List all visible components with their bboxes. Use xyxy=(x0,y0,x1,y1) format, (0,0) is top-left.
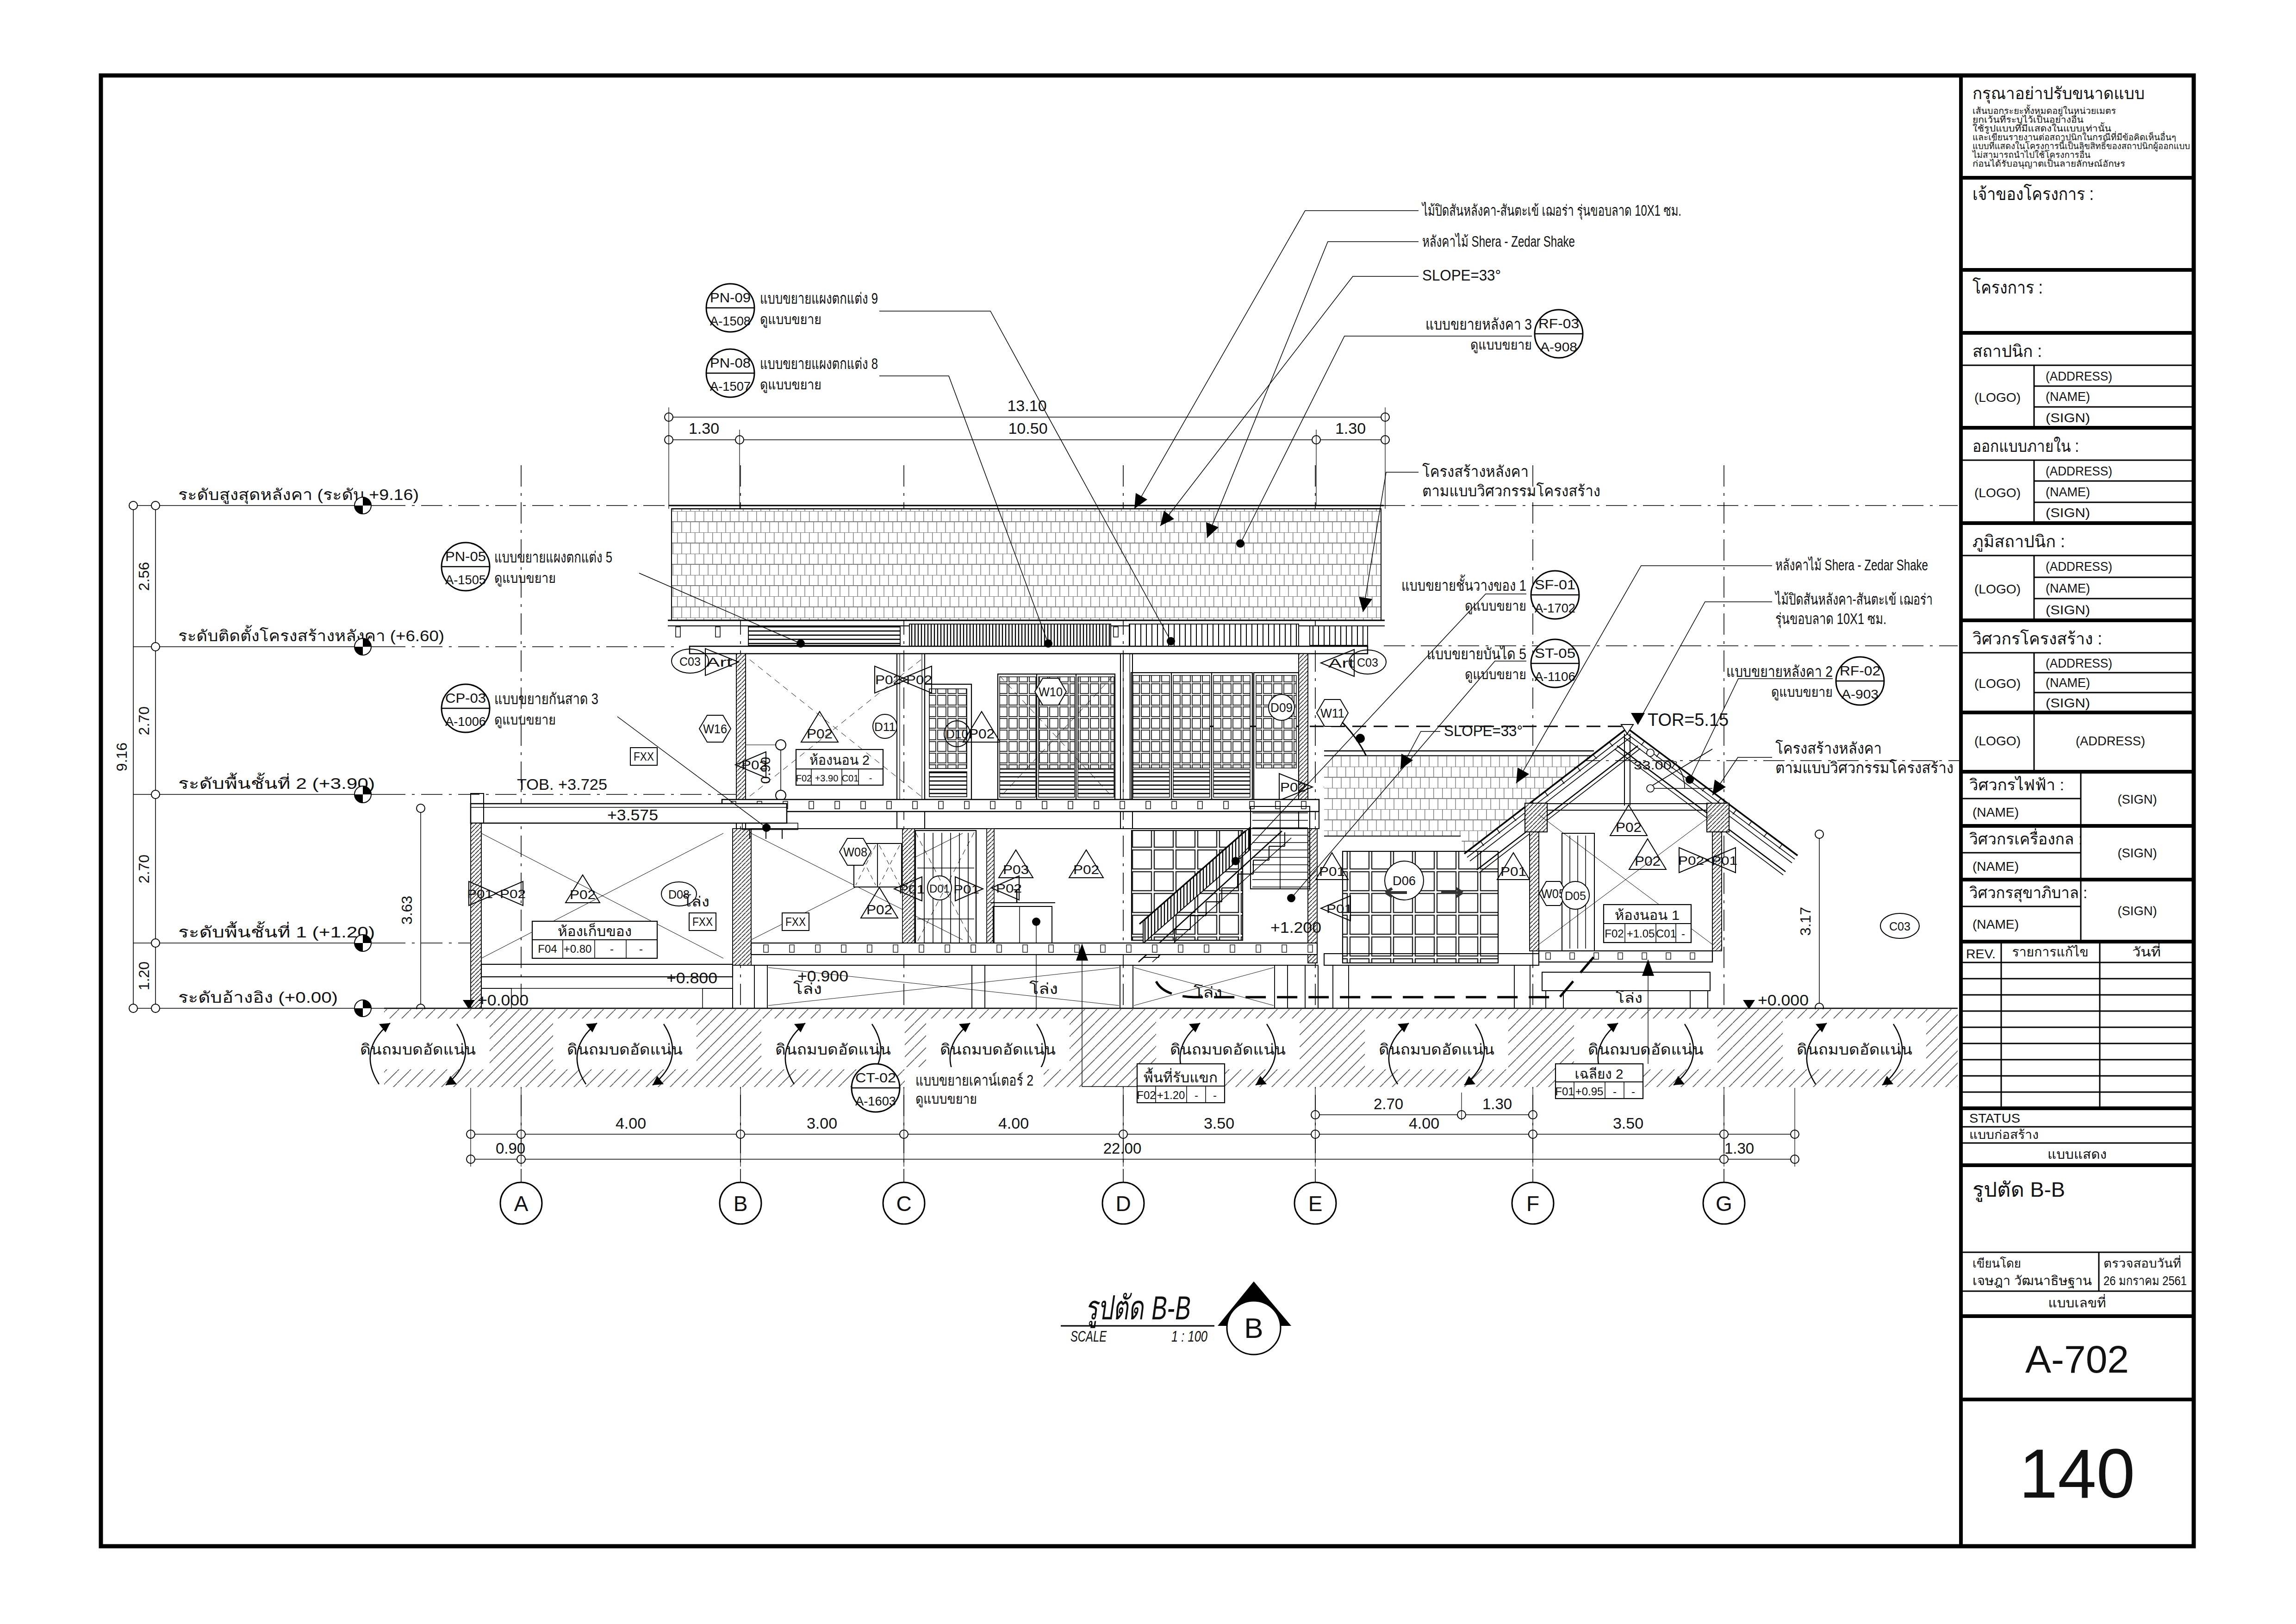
svg-text:A-1507: A-1507 xyxy=(710,379,751,394)
svg-text:(SIGN): (SIGN) xyxy=(2118,904,2157,918)
svg-text:C01: C01 xyxy=(842,773,859,783)
svg-text:PN-09: PN-09 xyxy=(710,290,751,305)
svg-text:ดูแบบขยาย: ดูแบบขยาย xyxy=(760,312,821,328)
svg-text:(NAME): (NAME) xyxy=(2046,485,2090,499)
svg-text:SLOPE=33°: SLOPE=33° xyxy=(1422,266,1501,284)
svg-text:P02: P02 xyxy=(1635,853,1661,868)
svg-text:D11: D11 xyxy=(874,720,896,734)
svg-text:F02: F02 xyxy=(796,773,812,783)
svg-text:(ADDRESS): (ADDRESS) xyxy=(2046,656,2112,670)
svg-text:C03: C03 xyxy=(1889,919,1910,933)
svg-text:RF-02: RF-02 xyxy=(1840,663,1880,678)
svg-text:-: - xyxy=(639,943,643,955)
svg-text:2.56: 2.56 xyxy=(136,562,152,591)
svg-text:(LOGO): (LOGO) xyxy=(1974,734,2021,748)
svg-text:D: D xyxy=(1115,1192,1131,1216)
svg-text:(NAME): (NAME) xyxy=(2046,581,2090,595)
svg-text:9.16: 9.16 xyxy=(113,743,130,771)
svg-text:2.70: 2.70 xyxy=(136,855,152,883)
svg-text:3.50: 3.50 xyxy=(1613,1114,1643,1132)
svg-text:ระดับอ้างอิง (+0.00): ระดับอ้างอิง (+0.00) xyxy=(178,989,338,1006)
svg-text:RF-03: RF-03 xyxy=(1538,316,1579,331)
svg-text:ดูแบบขยาย: ดูแบบขยาย xyxy=(915,1091,977,1107)
svg-text:ออกแบบภายใน :: ออกแบบภายใน : xyxy=(1972,437,2079,456)
svg-text:3.17: 3.17 xyxy=(1797,907,1814,936)
svg-text:4.00: 4.00 xyxy=(616,1114,646,1132)
svg-text:33.00°: 33.00° xyxy=(1634,758,1678,772)
svg-text:ตามแบบวิศวกรรมโครงสร้าง: ตามแบบวิศวกรรมโครงสร้าง xyxy=(1422,482,1600,500)
svg-text:(LOGO): (LOGO) xyxy=(1974,486,2021,500)
svg-text:3.63: 3.63 xyxy=(398,896,415,924)
svg-text:-: - xyxy=(610,943,614,955)
svg-text:(ADDRESS): (ADDRESS) xyxy=(2046,464,2112,478)
svg-text:ตรวจสอบวันที่: ตรวจสอบวันที่ xyxy=(2103,1255,2181,1270)
svg-text:วิศวกรสุขาภิบาล :: วิศวกรสุขาภิบาล : xyxy=(1969,884,2087,902)
svg-text:F01: F01 xyxy=(1555,1085,1574,1098)
svg-text:-: - xyxy=(1681,927,1685,940)
svg-text:+0.900: +0.900 xyxy=(797,968,848,985)
svg-text:+0.800: +0.800 xyxy=(666,969,717,987)
svg-text:เจ้าของโครงการ :: เจ้าของโครงการ : xyxy=(1972,184,2094,204)
svg-text:โครงสร้างหลังคา: โครงสร้างหลังคา xyxy=(1775,740,1882,757)
svg-text:A-908: A-908 xyxy=(1540,340,1577,354)
svg-text:-: - xyxy=(1195,1089,1198,1101)
svg-text:แบบขยายแผงตกแต่ง 5: แบบขยายแผงตกแต่ง 5 xyxy=(494,549,612,566)
svg-text:แบบขยายบันได 5: แบบขยายบันได 5 xyxy=(1427,645,1526,662)
svg-text:ดินถมบดอัดแน่น: ดินถมบดอัดแน่น xyxy=(1379,1041,1494,1058)
svg-text:4.00: 4.00 xyxy=(998,1114,1029,1132)
svg-text:C03: C03 xyxy=(679,655,701,668)
svg-text:ดินถมบดอัดแน่น: ดินถมบดอัดแน่น xyxy=(1588,1041,1704,1058)
svg-text:ดินถมบดอัดแน่น: ดินถมบดอัดแน่น xyxy=(1797,1041,1912,1058)
svg-text:ดูแบบขยาย: ดูแบบขยาย xyxy=(494,570,556,587)
svg-text:W10: W10 xyxy=(1039,685,1063,699)
svg-text:ห้องนอน 2: ห้องนอน 2 xyxy=(809,752,870,768)
svg-text:เขียนโดย: เขียนโดย xyxy=(1972,1256,2021,1270)
svg-text:SCALE: SCALE xyxy=(1070,1327,1107,1345)
svg-text:ไม่สามารถนำไปใช้โครงการอื่น: ไม่สามารถนำไปใช้โครงการอื่น xyxy=(1972,149,2091,160)
svg-text:กรุณาอย่าปรับขนาดแบบ: กรุณาอย่าปรับขนาดแบบ xyxy=(1972,84,2145,104)
svg-text:ดูแบบขยาย: ดูแบบขยาย xyxy=(1465,667,1526,683)
svg-text:CT-02: CT-02 xyxy=(855,1070,896,1085)
svg-text:วิศวกรโครงสร้าง :: วิศวกรโครงสร้าง : xyxy=(1972,629,2102,648)
svg-text:ระดับพื้นชั้นที่ 1 (+1.20): ระดับพื้นชั้นที่ 1 (+1.20) xyxy=(178,921,375,941)
svg-text:D06: D06 xyxy=(1393,874,1416,888)
svg-text:รุ่นขอบลาด 10X1 ซม.: รุ่นขอบลาด 10X1 ซม. xyxy=(1775,610,1886,628)
svg-text:CP-03: CP-03 xyxy=(445,690,486,706)
svg-text:(LOGO): (LOGO) xyxy=(1974,390,2021,405)
svg-text:A-1603: A-1603 xyxy=(855,1094,896,1108)
svg-text:ระดับสูงสุดหลังคา (ระดับ +9.16: ระดับสูงสุดหลังคา (ระดับ +9.16) xyxy=(178,486,419,504)
svg-text:(SIGN): (SIGN) xyxy=(2046,603,2090,617)
svg-text:(NAME): (NAME) xyxy=(2046,675,2090,690)
svg-text:D05: D05 xyxy=(1565,889,1586,903)
svg-text:+0.95: +0.95 xyxy=(1575,1085,1604,1098)
svg-text:SLOPE=33°: SLOPE=33° xyxy=(1444,722,1523,739)
svg-text:ดูแบบขยาย: ดูแบบขยาย xyxy=(494,712,556,728)
svg-text:(SIGN): (SIGN) xyxy=(2046,506,2090,520)
svg-text:P02: P02 xyxy=(875,673,901,687)
svg-text:ดูแบบขยาย: ดูแบบขยาย xyxy=(1470,337,1532,353)
svg-text:P01: P01 xyxy=(1711,854,1737,868)
svg-text:+0.80: +0.80 xyxy=(564,943,592,955)
svg-text:C03: C03 xyxy=(1357,656,1378,669)
svg-text:-: - xyxy=(869,773,872,783)
svg-text:P02: P02 xyxy=(1678,854,1704,868)
svg-text:B: B xyxy=(734,1192,748,1216)
svg-text:G: G xyxy=(1716,1192,1732,1216)
svg-text:P01: P01 xyxy=(467,887,493,901)
svg-text:1.30: 1.30 xyxy=(1335,419,1366,437)
svg-text:แบบขยายหลังคา 3: แบบขยายหลังคา 3 xyxy=(1425,316,1532,333)
svg-text:แบบขยายแผงตกแต่ง 8: แบบขยายแผงตกแต่ง 8 xyxy=(760,355,878,372)
svg-text:P02: P02 xyxy=(969,726,995,741)
svg-text:F: F xyxy=(1526,1192,1539,1216)
svg-text:+3.575: +3.575 xyxy=(607,806,658,824)
svg-text:2.70: 2.70 xyxy=(1374,1095,1403,1112)
svg-text:P02: P02 xyxy=(741,758,767,772)
svg-text:W11: W11 xyxy=(1320,706,1344,720)
svg-text:แบบเลขที่: แบบเลขที่ xyxy=(2048,1294,2106,1310)
svg-text:D09: D09 xyxy=(1270,700,1293,715)
svg-text:(SIGN): (SIGN) xyxy=(2118,792,2157,806)
svg-text:P02: P02 xyxy=(1073,862,1099,877)
svg-text:P02: P02 xyxy=(996,881,1022,895)
svg-text:ห้องเก็บของ: ห้องเก็บของ xyxy=(558,923,632,939)
svg-text:A-1505: A-1505 xyxy=(445,573,486,587)
svg-text:แบบแสดง: แบบแสดง xyxy=(2047,1147,2107,1162)
svg-text:4.00: 4.00 xyxy=(1409,1114,1439,1132)
svg-text:ก่อนได้รับอนุญาตเป็นลายลักษณ์อ: ก่อนได้รับอนุญาตเป็นลายลักษณ์อักษร xyxy=(1972,158,2125,169)
svg-text:A: A xyxy=(514,1192,529,1216)
svg-text:(SIGN): (SIGN) xyxy=(2046,696,2090,710)
svg-text:A-1106: A-1106 xyxy=(1535,669,1575,684)
svg-text:ระดับติดตั้งโครงสร้างหลังคา (+: ระดับติดตั้งโครงสร้างหลังคา (+6.60) xyxy=(178,625,444,644)
svg-text:1.30: 1.30 xyxy=(1482,1095,1512,1112)
svg-text:(LOGO): (LOGO) xyxy=(1974,676,2021,691)
svg-text:1.30: 1.30 xyxy=(689,419,719,437)
svg-text:P02: P02 xyxy=(570,887,596,902)
svg-text:(NAME): (NAME) xyxy=(1972,917,2019,931)
svg-text:C01: C01 xyxy=(1656,927,1676,940)
svg-text:แบบก่อสร้าง: แบบก่อสร้าง xyxy=(1969,1128,2039,1142)
svg-text:+0.000: +0.000 xyxy=(1758,992,1809,1009)
svg-text:REV.: REV. xyxy=(1966,947,1996,961)
svg-text:แบบขยายแผงตกแต่ง 9: แบบขยายแผงตกแต่ง 9 xyxy=(760,290,878,307)
svg-text:PN-05: PN-05 xyxy=(445,549,486,564)
svg-text:P01: P01 xyxy=(1326,902,1352,916)
svg-text:โครงการ :: โครงการ : xyxy=(1972,277,2043,297)
svg-text:P03: P03 xyxy=(1003,862,1029,877)
svg-text:รูปตัด B-B: รูปตัด B-B xyxy=(1084,1289,1194,1328)
svg-text:-: - xyxy=(1613,1085,1617,1098)
svg-text:(SIGN): (SIGN) xyxy=(2046,411,2090,425)
svg-text:A-702: A-702 xyxy=(2025,1337,2129,1381)
svg-text:(ADDRESS): (ADDRESS) xyxy=(2046,559,2112,574)
svg-text:ดินถมบดอัดแน่น: ดินถมบดอัดแน่น xyxy=(1170,1041,1286,1058)
svg-text:STATUS: STATUS xyxy=(1969,1111,2020,1125)
svg-text:-: - xyxy=(1631,1085,1635,1098)
svg-text:+1.05: +1.05 xyxy=(1627,927,1655,940)
svg-text:หลังคาไม้ Shera - Zedar Shake: หลังคาไม้ Shera - Zedar Shake xyxy=(1422,233,1575,250)
svg-text:(NAME): (NAME) xyxy=(1972,805,2019,819)
svg-text:+1.20: +1.20 xyxy=(1157,1089,1185,1101)
svg-text:โล่ง: โล่ง xyxy=(1194,984,1222,1001)
svg-text:P01: P01 xyxy=(899,882,925,896)
svg-text:Art: Art xyxy=(706,655,732,669)
svg-text:C: C xyxy=(896,1192,911,1216)
svg-text:P02: P02 xyxy=(866,902,892,917)
svg-text:P02: P02 xyxy=(1280,780,1306,794)
svg-text:P01: P01 xyxy=(1319,864,1345,879)
svg-text:P01: P01 xyxy=(1500,864,1526,879)
svg-text:เจษฎา วัฒนาธิษฐาน: เจษฎา วัฒนาธิษฐาน xyxy=(1972,1274,2092,1288)
svg-text:+1.200: +1.200 xyxy=(1270,918,1321,936)
svg-text:1.20: 1.20 xyxy=(136,962,152,990)
svg-text:A-903: A-903 xyxy=(1842,687,1879,701)
svg-text:10.50: 10.50 xyxy=(1008,419,1047,437)
svg-text:140: 140 xyxy=(2019,1435,2135,1512)
svg-text:วิศวกรเครื่องกล :: วิศวกรเครื่องกล : xyxy=(1969,828,2083,848)
svg-text:P02: P02 xyxy=(1616,819,1642,835)
svg-text:F04: F04 xyxy=(538,943,557,955)
svg-text:13.10: 13.10 xyxy=(1007,397,1046,414)
svg-text:-: - xyxy=(1213,1089,1217,1101)
svg-text:(LOGO): (LOGO) xyxy=(1974,582,2021,596)
svg-text:ตามแบบวิศวกรรมโครงสร้าง: ตามแบบวิศวกรรมโครงสร้าง xyxy=(1775,759,1954,776)
svg-text:P02: P02 xyxy=(906,673,932,687)
svg-text:พื้นที่รับแขก: พื้นที่รับแขก xyxy=(1144,1068,1218,1085)
svg-text:ดูแบบขยาย: ดูแบบขยาย xyxy=(760,377,821,393)
svg-text:P02: P02 xyxy=(500,887,526,901)
svg-text:ไม้ปิดสันหลังคา-สันตะเข้ เฌอร่: ไม้ปิดสันหลังคา-สันตะเข้ เฌอร่า รุ่นขอบล… xyxy=(1421,202,1681,220)
svg-text:แบบขยายกันสาด 3: แบบขยายกันสาด 3 xyxy=(494,690,598,707)
svg-text:โครงสร้างหลังคา: โครงสร้างหลังคา xyxy=(1422,463,1529,480)
svg-text:3.50: 3.50 xyxy=(1204,1114,1234,1132)
svg-text:โล่ง: โล่ง xyxy=(683,893,709,909)
svg-text:26 มกราคม 2561: 26 มกราคม 2561 xyxy=(2103,1274,2187,1288)
svg-text:(NAME): (NAME) xyxy=(1972,859,2019,874)
svg-text:TOR=5.15: TOR=5.15 xyxy=(1648,710,1729,730)
svg-text:2.70: 2.70 xyxy=(136,706,152,735)
svg-text:F02: F02 xyxy=(1137,1089,1156,1101)
svg-text:FXX: FXX xyxy=(785,915,806,929)
svg-text:B: B xyxy=(1244,1312,1263,1344)
svg-text:W08: W08 xyxy=(843,845,867,859)
svg-text:SF-01: SF-01 xyxy=(1535,577,1575,592)
svg-text:PN-08: PN-08 xyxy=(710,355,751,370)
svg-text:เฉลียง 2: เฉลียง 2 xyxy=(1575,1066,1624,1081)
svg-text:ดูแบบขยาย: ดูแบบขยาย xyxy=(1771,684,1833,700)
svg-text:แบบขยายชั้นวางของ 1: แบบขยายชั้นวางของ 1 xyxy=(1401,575,1526,594)
svg-text:วันที่: วันที่ xyxy=(2132,943,2161,959)
svg-text:ดินถมบดอัดแน่น: ดินถมบดอัดแน่น xyxy=(360,1041,476,1058)
svg-text:รูปตัด B-B: รูปตัด B-B xyxy=(1972,1178,2065,1202)
svg-text:1.30: 1.30 xyxy=(1724,1140,1754,1157)
svg-text:วิศวกรไฟฟ้า :: วิศวกรไฟฟ้า : xyxy=(1969,776,2064,793)
svg-text:โล่ง: โล่ง xyxy=(1029,981,1058,997)
svg-text:ห้องนอน 1: ห้องนอน 1 xyxy=(1615,907,1680,923)
svg-text:+3.90: +3.90 xyxy=(815,773,839,783)
svg-text:และเขียนรายงานต่อสถาปนิกในกรณี: และเขียนรายงานต่อสถาปนิกในกรณีที่มีข้อคิ… xyxy=(1972,131,2176,142)
svg-text:P01: P01 xyxy=(953,882,979,896)
svg-text:FXX: FXX xyxy=(692,915,713,929)
svg-text:ST-05: ST-05 xyxy=(1535,645,1575,661)
svg-text:W16: W16 xyxy=(703,722,727,736)
svg-text:A-1508: A-1508 xyxy=(710,314,751,328)
svg-text:3.00: 3.00 xyxy=(807,1114,837,1132)
svg-text:1 : 100: 1 : 100 xyxy=(1171,1327,1207,1345)
svg-text:โล่ง: โล่ง xyxy=(1616,990,1643,1006)
svg-text:ดินถมบดอัดแน่น: ดินถมบดอัดแน่น xyxy=(567,1041,683,1058)
svg-text:ดินถมบดอัดแน่น: ดินถมบดอัดแน่น xyxy=(775,1041,891,1058)
svg-text:สถาปนิก :: สถาปนิก : xyxy=(1972,342,2042,361)
svg-text:F02: F02 xyxy=(1605,927,1624,940)
svg-text:FXX: FXX xyxy=(634,750,654,763)
svg-text:หลังคาไม้ Shera - Zedar Shake: หลังคาไม้ Shera - Zedar Shake xyxy=(1775,556,1928,574)
svg-text:แบบขยายหลังคา 2: แบบขยายหลังคา 2 xyxy=(1726,663,1833,680)
svg-text:D01: D01 xyxy=(929,882,950,895)
svg-text:(SIGN): (SIGN) xyxy=(2118,846,2157,860)
svg-text:ไม้ปิดสันหลังคา-สันตะเข้ เฌอร่: ไม้ปิดสันหลังคา-สันตะเข้ เฌอร่า xyxy=(1774,591,1933,608)
svg-text:A-1006: A-1006 xyxy=(445,714,486,729)
svg-text:(NAME): (NAME) xyxy=(2046,389,2090,404)
svg-text:E: E xyxy=(1308,1192,1323,1216)
svg-text:ภูมิสถาปนิก :: ภูมิสถาปนิก : xyxy=(1972,532,2065,552)
svg-text:รายการแก้ไข: รายการแก้ไข xyxy=(2012,945,2089,959)
svg-text:+0.000: +0.000 xyxy=(478,992,529,1009)
svg-text:แบบขยายเคาน์เตอร์ 2: แบบขยายเคาน์เตอร์ 2 xyxy=(915,1072,1033,1089)
svg-text:22.00: 22.00 xyxy=(1103,1140,1142,1157)
svg-text:(ADDRESS): (ADDRESS) xyxy=(2076,734,2145,748)
svg-text:A-1702: A-1702 xyxy=(1535,601,1575,615)
svg-text:(ADDRESS): (ADDRESS) xyxy=(2046,369,2112,383)
svg-text:ดินถมบดอัดแน่น: ดินถมบดอัดแน่น xyxy=(940,1041,1056,1058)
svg-text:TOB. +3.725: TOB. +3.725 xyxy=(517,776,607,793)
svg-text:ระดับพื้นชั้นที่ 2 (+3.90): ระดับพื้นชั้นที่ 2 (+3.90) xyxy=(178,773,375,792)
